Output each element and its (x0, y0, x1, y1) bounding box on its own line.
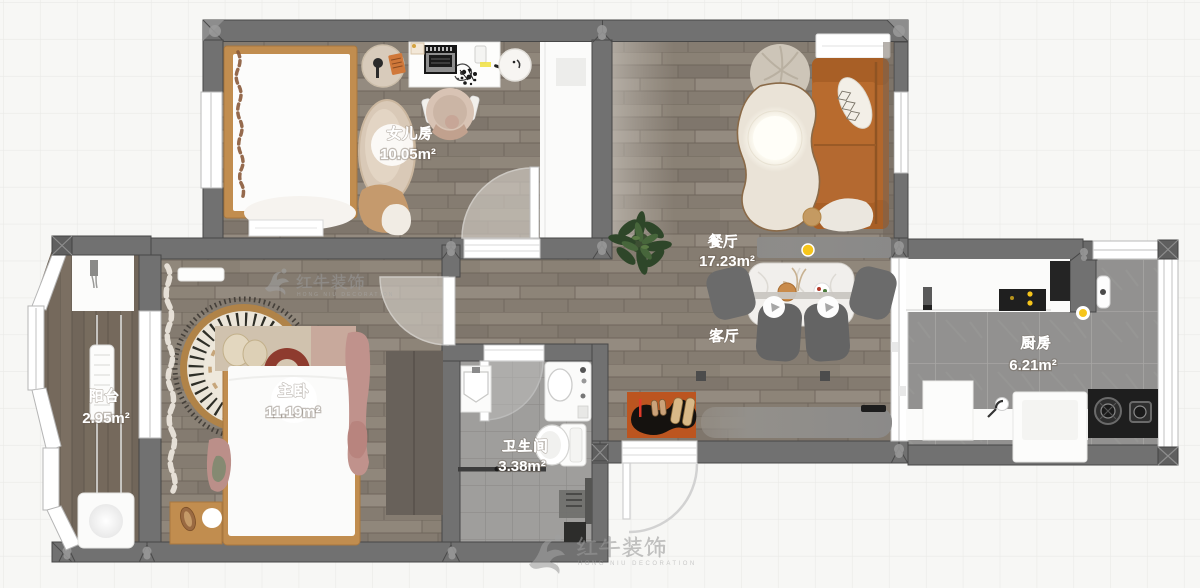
svg-text:10.05m²: 10.05m² (380, 146, 436, 163)
svg-text:HONG NIU DECORATION: HONG NIU DECORATION (297, 292, 394, 298)
svg-text:6.21m²: 6.21m² (1009, 357, 1057, 374)
svg-text:11.19m²: 11.19m² (265, 404, 320, 421)
svg-text:3.38m²: 3.38m² (498, 458, 546, 475)
svg-text:2.95m²: 2.95m² (82, 410, 130, 427)
svg-text:HONG NIU DECORATION: HONG NIU DECORATION (578, 561, 697, 567)
svg-text:17.23m²: 17.23m² (699, 253, 755, 270)
